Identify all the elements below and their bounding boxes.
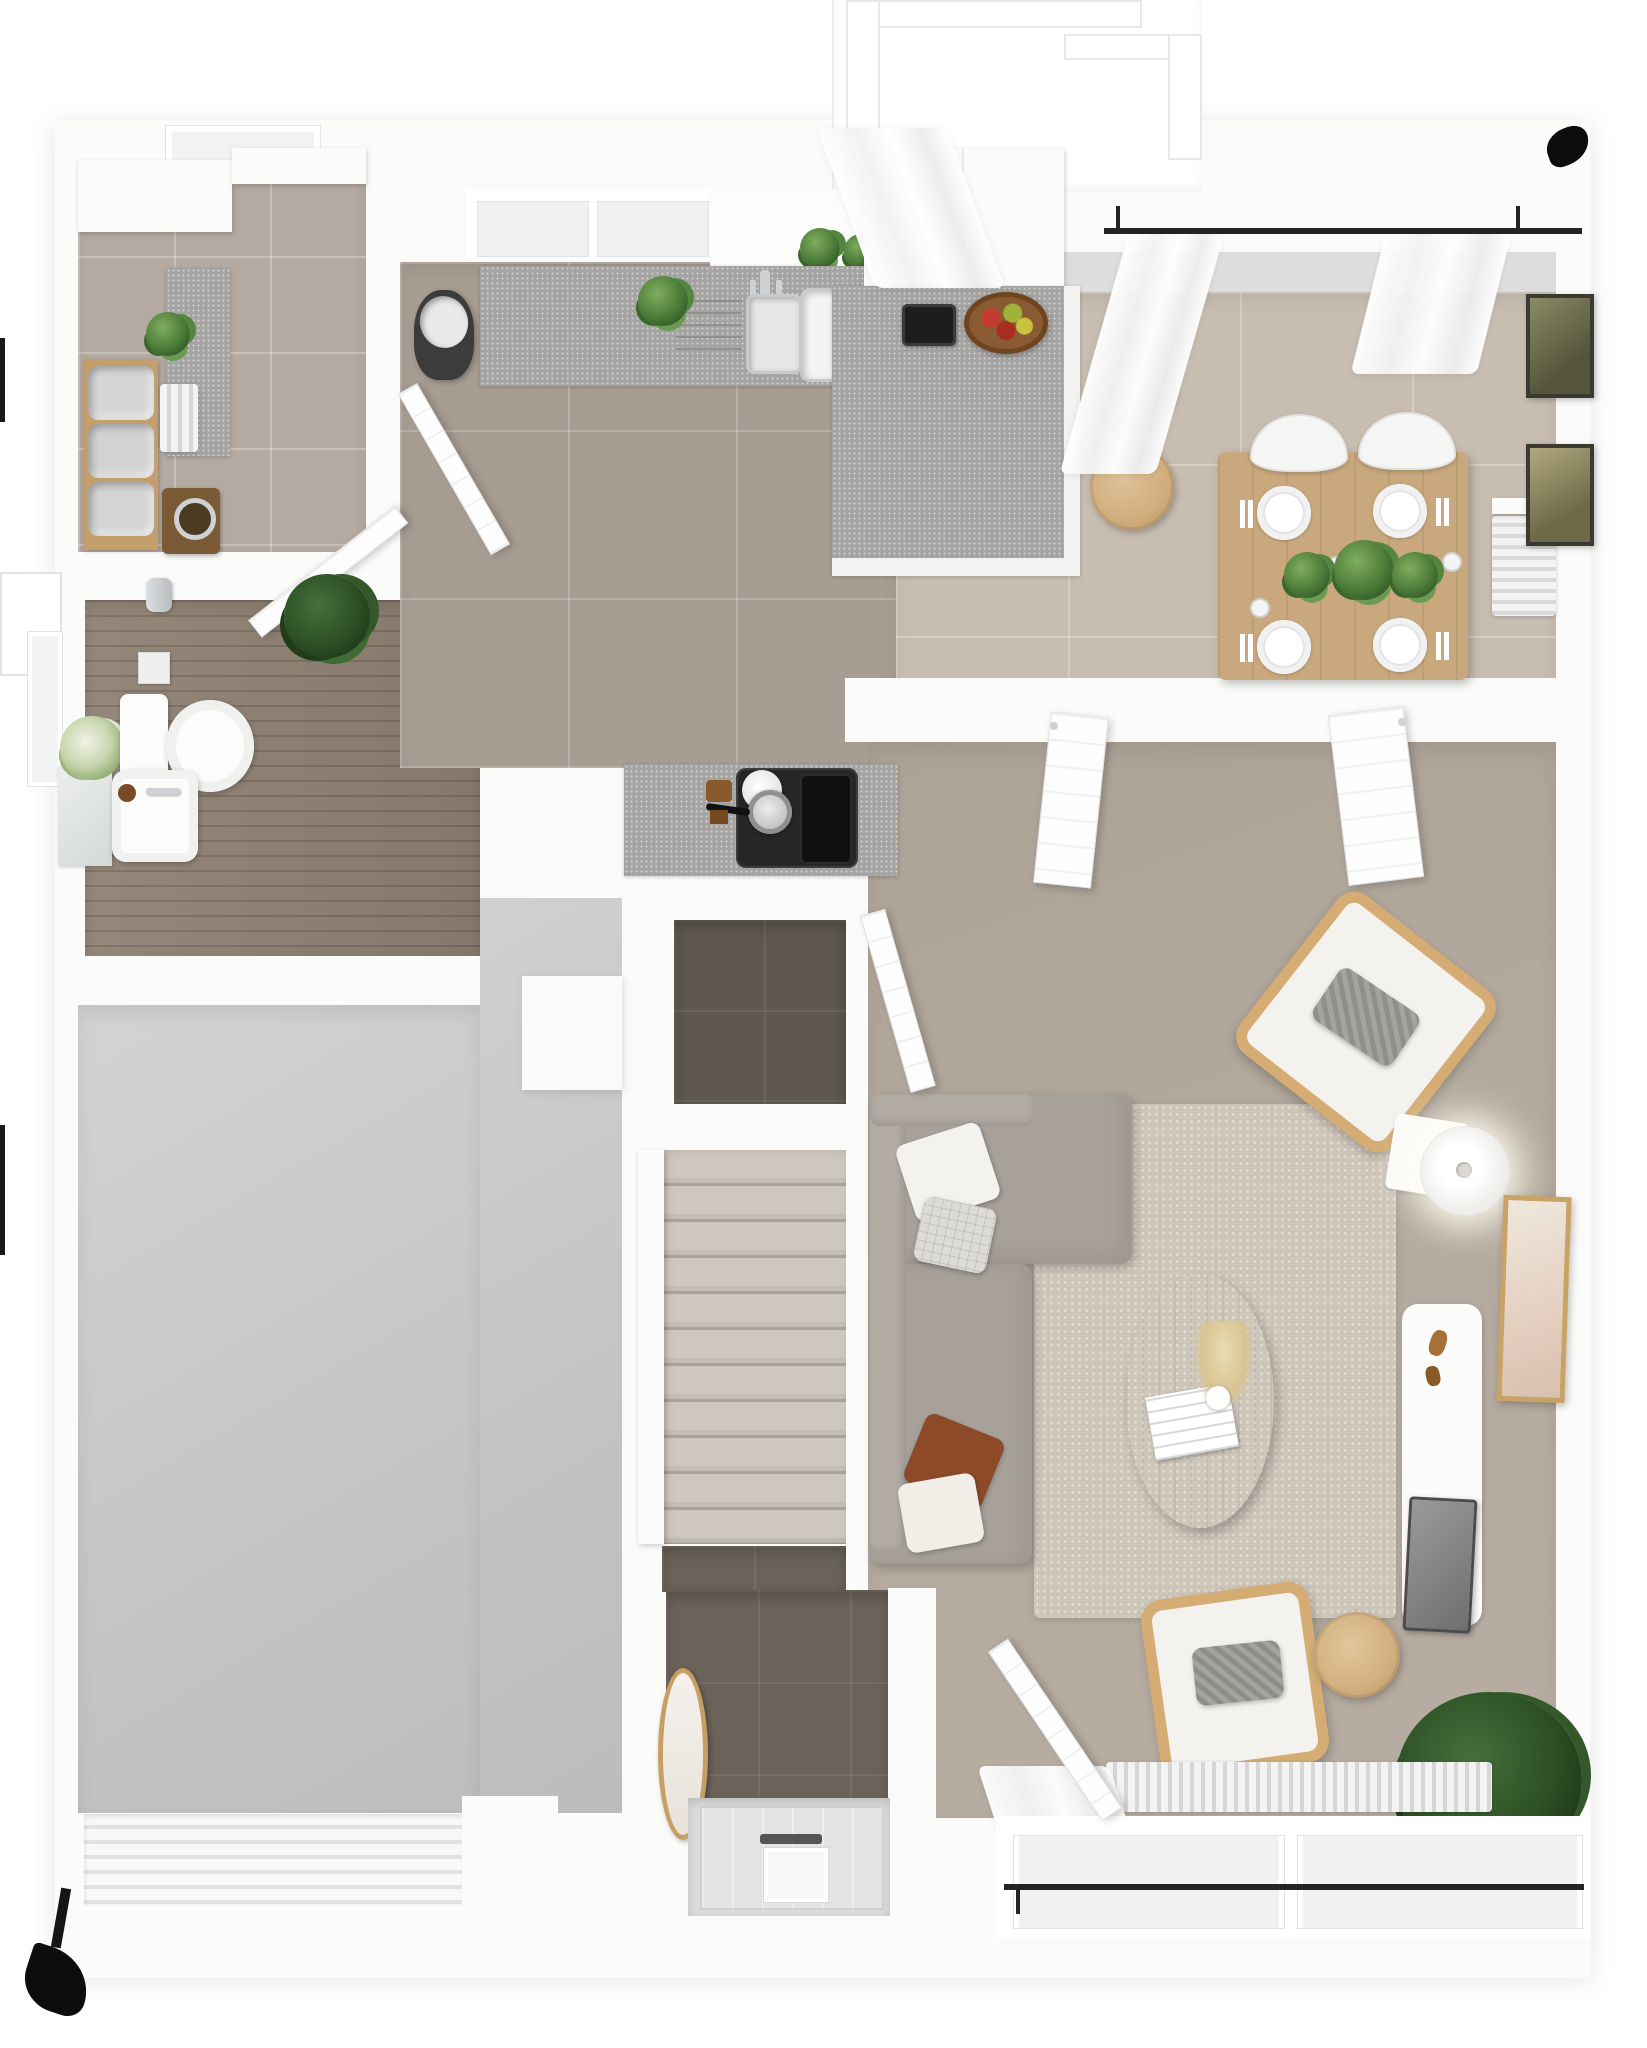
bathroom-mirror (58, 766, 112, 866)
living-radiator (1106, 1762, 1492, 1812)
side-table (1314, 1612, 1400, 1698)
curtain-rod-top-pin-1-icon (1116, 206, 1120, 230)
utility-plant-icon (146, 312, 190, 356)
sofa-backrest-top (870, 1094, 1034, 1126)
sofa-pillow-white-2 (897, 1472, 986, 1554)
left-wall-opening-mark-2-icon (0, 1125, 5, 1255)
washing-machine-door-icon (174, 498, 216, 540)
worktop-plant-icon (638, 276, 688, 326)
pot-icon (748, 790, 792, 834)
plate-3 (1257, 620, 1311, 674)
bathroom-flowers-icon (60, 716, 124, 780)
balcony-railing-top (846, 0, 1142, 28)
living-window-1 (1008, 1830, 1290, 1934)
fruit-bowl-icon (964, 292, 1048, 354)
tv-panel (1403, 1496, 1478, 1633)
table-plant-2-icon (1334, 540, 1394, 600)
garage-step-block (462, 1796, 558, 1908)
griddle-icon (800, 774, 852, 864)
bathroom-window (28, 632, 62, 786)
living-window-2 (1292, 1830, 1588, 1934)
table-plant-3-icon (1392, 552, 1438, 598)
plate-4 (1373, 618, 1427, 672)
coffee-machine-icon (902, 304, 956, 346)
cutlery-icon-1 (1240, 500, 1245, 528)
storage-basket-3 (88, 482, 154, 536)
toilet-brush-icon (146, 578, 172, 612)
armchair-lower-pillow (1191, 1640, 1285, 1707)
garage-pillar (522, 976, 622, 1090)
table-plant-1-icon (1284, 552, 1330, 598)
hallway-plant-icon (284, 574, 370, 658)
sink-tap-icon (146, 788, 180, 795)
staircase (662, 1150, 846, 1544)
floorplan-render (0, 0, 1647, 2048)
utility-cabinet-2 (232, 148, 366, 184)
curtain-rod-bottom (1004, 1884, 1584, 1890)
curtain-rod-top-pin-2-icon (1516, 206, 1520, 230)
door-2-handle-icon (1398, 718, 1406, 726)
stair-hall-floor (662, 1546, 846, 1592)
utensil-jar-icon (706, 780, 732, 802)
leaning-artwork (1496, 1195, 1571, 1403)
wall-art-1 (1526, 294, 1594, 398)
toilet-paper-holder-icon (138, 652, 170, 684)
kitchen-window-1 (472, 196, 594, 262)
kitchen-window-2 (592, 196, 714, 262)
glass-2 (1442, 552, 1462, 572)
storage-basket-1 (88, 366, 154, 420)
cutlery-icon-2 (1436, 498, 1441, 526)
front-door-letterbox-icon (760, 1834, 822, 1844)
glass-3 (1250, 598, 1270, 618)
wall-dining-living (845, 678, 1590, 742)
sink-basin-small (746, 294, 802, 374)
front-door-glazing (764, 1848, 828, 1902)
closet-floor (674, 920, 846, 1104)
cutlery-icon-4 (1436, 632, 1441, 660)
soap-jar-icon (118, 784, 136, 802)
plate-1 (1257, 486, 1311, 540)
utility-cabinet-1 (78, 160, 232, 232)
curtain-rod-bottom-pin-icon (1016, 1890, 1020, 1914)
vase-icon (1206, 1386, 1230, 1410)
cutlery-icon-3 (1240, 634, 1245, 662)
herb-pot-1-icon (800, 228, 840, 268)
plate-2 (1373, 484, 1427, 538)
wall-art-2 (1526, 444, 1594, 546)
garage-floor (78, 1005, 480, 1813)
stair-handrail (638, 1150, 664, 1544)
storage-basket-2 (88, 424, 154, 478)
lamp-stem-icon (1456, 1162, 1472, 1178)
wall-entrance-living (888, 1588, 936, 1960)
balcony-railing-2-right (1168, 34, 1202, 160)
utility-radiator (160, 384, 198, 452)
garage-door-ribs (84, 1814, 466, 1906)
door-1-handle-icon (1050, 722, 1058, 730)
left-wall-opening-mark-1-icon (0, 338, 5, 422)
